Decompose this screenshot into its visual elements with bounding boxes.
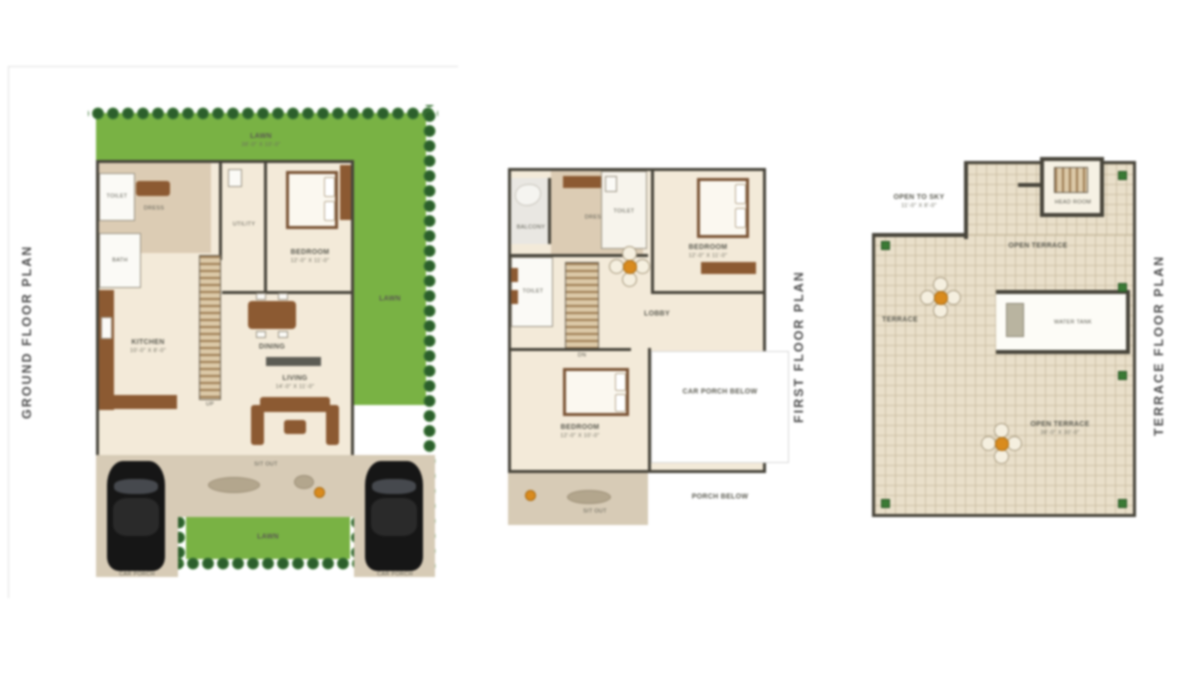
stair-label-first: DN xyxy=(578,353,587,360)
living-label: LIVING 14'-0" X 11'-0" xyxy=(276,375,315,391)
floor-plan-sheet: GROUND FLOOR PLAN LAWN 38'-0" X 10'-0" L… xyxy=(0,0,1200,700)
t2-chair-w xyxy=(981,436,996,451)
dining-chair-4 xyxy=(278,331,288,338)
sofa-back xyxy=(260,397,330,412)
terrace-wall-step-v xyxy=(964,161,968,239)
plant-box-4 xyxy=(1118,371,1127,380)
pillow-3 xyxy=(735,184,746,204)
terrace-floor-plan-title: TERRACE FLOOR PLAN xyxy=(1152,240,1170,450)
t1-chair-e xyxy=(946,290,961,305)
dining-table xyxy=(248,301,296,329)
wardrobe-first-bedroom xyxy=(701,262,756,274)
t2-chair-s xyxy=(994,449,1009,464)
t2-table-top xyxy=(995,437,1009,451)
kitchen-counter-bottom xyxy=(99,395,177,409)
ground-floor-plan: LAWN 38'-0" X 10'-0" LAWN LAWN DRESS TOI… xyxy=(88,105,440,587)
dressing-table xyxy=(136,181,170,196)
dress-label: DRESS xyxy=(144,206,164,213)
stepping-stone-3 xyxy=(567,490,611,504)
bedroom-bottom-name: BEDROOM xyxy=(561,424,600,431)
sitout-first-label: SIT OUT xyxy=(583,509,607,516)
bedroom-dim-ground: 12'-0" X 11'-0" xyxy=(291,258,330,265)
lobby-chair-e xyxy=(635,259,650,274)
car-left xyxy=(107,461,165,571)
scan-border-left xyxy=(8,66,9,598)
lobby-label: LOBBY xyxy=(644,311,670,320)
lobby-table-top xyxy=(623,260,637,274)
terrace-table-2 xyxy=(983,425,1019,461)
garden-pot xyxy=(314,487,325,498)
toilet-left-label: TOILET xyxy=(523,289,544,296)
bedroom-bottom-dim: 12'-0" X 10'-0" xyxy=(560,433,599,440)
lobby-chair-w xyxy=(609,259,624,274)
plant-box-6 xyxy=(1118,499,1127,508)
terrace-c-dim: 38'-0" X 30'-0" xyxy=(1030,430,1089,437)
car-right-roof xyxy=(371,498,417,535)
car-porch-left-label: CAR PORCH xyxy=(119,572,155,579)
pillow-5 xyxy=(615,373,626,391)
t1-chair-n xyxy=(933,277,948,292)
side-lawn-label: LAWN xyxy=(379,296,401,305)
terrace-c-name: OPEN TERRACE xyxy=(1030,421,1089,428)
head-room-label: HEAD ROOM xyxy=(1055,200,1092,207)
staircase-ground xyxy=(199,255,221,400)
pillow-4 xyxy=(735,208,746,228)
coffee-table xyxy=(284,420,306,434)
car-porch-below-area xyxy=(651,351,789,463)
terrace-label-c: OPEN TERRACE 38'-0" X 30'-0" xyxy=(1030,421,1089,437)
stepping-stone-1 xyxy=(208,477,260,493)
lobby-chair-n xyxy=(622,246,637,261)
sitout-label-ground: SIT OUT xyxy=(254,462,278,469)
t1-chair-w xyxy=(920,290,935,305)
head-room-wall-ext xyxy=(1018,183,1040,187)
plant-box-3 xyxy=(1118,283,1127,292)
terrace-lower xyxy=(872,235,1136,517)
terrace-floor-plan: OPEN TO SKY 11'-0" X 8'-0" HEAD ROOM WAT… xyxy=(868,155,1140,523)
dining-chair-1 xyxy=(256,293,266,300)
t1-chair-s xyxy=(933,303,948,318)
kitchen-counter-left xyxy=(99,290,114,410)
dining-label: DINING xyxy=(259,344,285,353)
t2-chair-n xyxy=(994,423,1009,438)
tank xyxy=(1006,303,1024,337)
plant-box-5 xyxy=(881,499,890,508)
terrace-label-a: OPEN TERRACE xyxy=(1008,243,1067,252)
utility-fixture xyxy=(228,169,242,187)
car-left-windshield xyxy=(114,479,158,494)
car-right-windshield xyxy=(372,479,416,494)
wall-bedroom-left xyxy=(264,163,267,293)
kitchen-name: KITCHEN xyxy=(131,339,164,346)
toilet-shelf-1 xyxy=(511,268,518,282)
dining-chair-2 xyxy=(278,293,288,300)
hedge-bottom xyxy=(172,555,364,572)
stepping-stone-2 xyxy=(294,475,314,489)
bedroom-top-name: BEDROOM xyxy=(689,244,728,251)
kitchen-dim: 10'-0" X 8'-0" xyxy=(130,348,166,355)
car-porch-right-label: CAR PORCH xyxy=(377,572,413,579)
bath-1-label: BATH xyxy=(112,258,127,265)
scan-border-top xyxy=(8,66,458,67)
balcony-label: BALCONY xyxy=(517,225,545,232)
wall-first-bl-top xyxy=(511,348,631,351)
bedroom-name-ground: BEDROOM xyxy=(291,249,330,256)
toilet-1-label: TOILET xyxy=(107,194,128,201)
wardrobe-ground xyxy=(340,165,351,220)
terrace-wall-step-h xyxy=(872,233,968,237)
living-name: LIVING xyxy=(282,375,307,382)
front-lawn-label: LAWN 38'-0" X 10'-0" xyxy=(241,133,280,149)
pillow-1 xyxy=(324,177,335,197)
first-floor-plan: BALCONY DRESS TOILET BEDROOM 12'-0" X 11… xyxy=(505,160,793,528)
lobby-chair-s xyxy=(622,272,637,287)
rear-lawn-label: LAWN xyxy=(257,534,279,543)
terrace-label-b: TERRACE xyxy=(882,317,918,326)
tank-room-label: WATER TANK xyxy=(1054,320,1092,327)
head-room-stairs xyxy=(1054,167,1088,193)
car-porch-below-label: CAR PORCH BELOW xyxy=(683,389,758,398)
tv-unit xyxy=(266,357,321,366)
front-lawn-name: LAWN xyxy=(250,133,272,140)
open-to-sky-name: OPEN TO SKY xyxy=(893,194,944,201)
hedge-top xyxy=(88,105,438,122)
wall-first-bedroom-left xyxy=(651,168,654,294)
t2-chair-e xyxy=(1007,436,1022,451)
pillow-2 xyxy=(324,201,335,221)
wall-first-bedroom-bottom xyxy=(651,291,766,294)
sofa-left xyxy=(251,405,264,445)
porch-below-label: PORCH BELOW xyxy=(692,494,749,503)
open-to-sky-label: OPEN TO SKY 11'-0" X 8'-0" xyxy=(893,194,944,210)
side-lawn xyxy=(354,160,426,405)
living-dim: 14'-0" X 11'-0" xyxy=(276,384,315,391)
lobby-table xyxy=(611,248,647,284)
toilet-top-label: TOILET xyxy=(614,209,635,216)
open-to-sky-dim: 11'-0" X 8'-0" xyxy=(893,203,944,210)
stair-label-ground: UP xyxy=(206,402,214,409)
toilet-top-wc xyxy=(605,176,617,192)
car-left-roof xyxy=(113,498,159,535)
bedroom-label-ground: BEDROOM 12'-0" X 11'-0" xyxy=(291,249,330,265)
staircase-first xyxy=(565,262,599,350)
t1-table-top xyxy=(934,291,948,305)
utility-label: UTILITY xyxy=(233,222,256,229)
dining-chair-3 xyxy=(256,331,266,338)
terrace-table-1 xyxy=(922,279,958,315)
first-floor-plan-title: FIRST FLOOR PLAN xyxy=(792,252,810,442)
bedroom-top-label: BEDROOM 12'-0" X 11'-0" xyxy=(689,244,728,260)
kitchen-sink xyxy=(101,317,112,339)
front-lawn-dim: 38'-0" X 10'-0" xyxy=(241,142,280,149)
kitchen-label: KITCHEN 10'-0" X 8'-0" xyxy=(130,339,166,355)
car-right xyxy=(365,461,423,571)
plant-box-1 xyxy=(881,241,890,250)
bedroom-top-dim: 12'-0" X 11'-0" xyxy=(689,253,728,260)
bedroom-bottom-label: BEDROOM 12'-0" X 10'-0" xyxy=(560,424,599,440)
sofa-right xyxy=(326,405,339,445)
ground-floor-plan-title: GROUND FLOOR PLAN xyxy=(20,232,38,432)
toilet-shelf-2 xyxy=(511,290,518,304)
pillow-6 xyxy=(615,394,626,412)
pot-first xyxy=(525,490,536,501)
plant-box-2 xyxy=(1118,171,1127,180)
wall-bedroom-bottom xyxy=(222,291,354,294)
